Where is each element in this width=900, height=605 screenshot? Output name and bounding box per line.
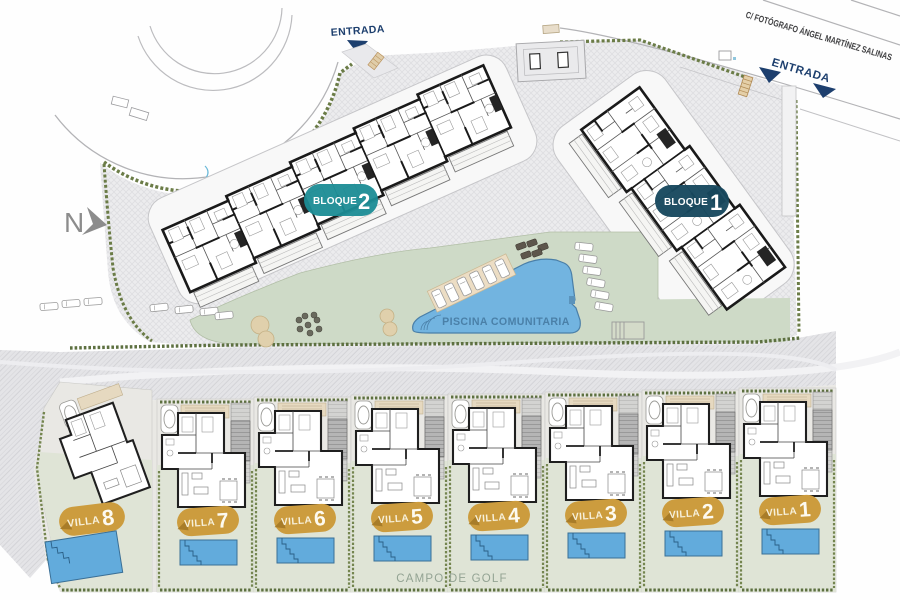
svg-text:VILLA: VILLA: [184, 517, 216, 530]
svg-text:7: 7: [216, 509, 229, 533]
svg-text:BLOQUE: BLOQUE: [664, 197, 708, 208]
svg-text:N: N: [64, 207, 84, 238]
svg-text:1: 1: [710, 190, 722, 215]
svg-text:CAMPO DE GOLF: CAMPO DE GOLF: [396, 573, 507, 585]
svg-text:4: 4: [507, 504, 521, 528]
svg-text:2: 2: [701, 500, 714, 524]
svg-text:3: 3: [604, 502, 617, 526]
svg-text:BLOQUE: BLOQUE: [313, 196, 357, 207]
svg-text:PISCINA COMUNITARIA: PISCINA COMUNITARIA: [442, 316, 570, 328]
svg-text:VILLA: VILLA: [669, 508, 701, 521]
svg-text:VILLA: VILLA: [475, 512, 507, 525]
svg-text:VILLA: VILLA: [766, 506, 798, 519]
svg-text:VILLA: VILLA: [281, 515, 313, 528]
svg-text:VILLA: VILLA: [378, 513, 410, 526]
svg-text:1: 1: [798, 498, 812, 522]
svg-text:5: 5: [410, 505, 424, 529]
svg-text:2: 2: [358, 189, 370, 214]
svg-text:VILLA: VILLA: [572, 510, 604, 523]
svg-text:6: 6: [313, 507, 326, 531]
